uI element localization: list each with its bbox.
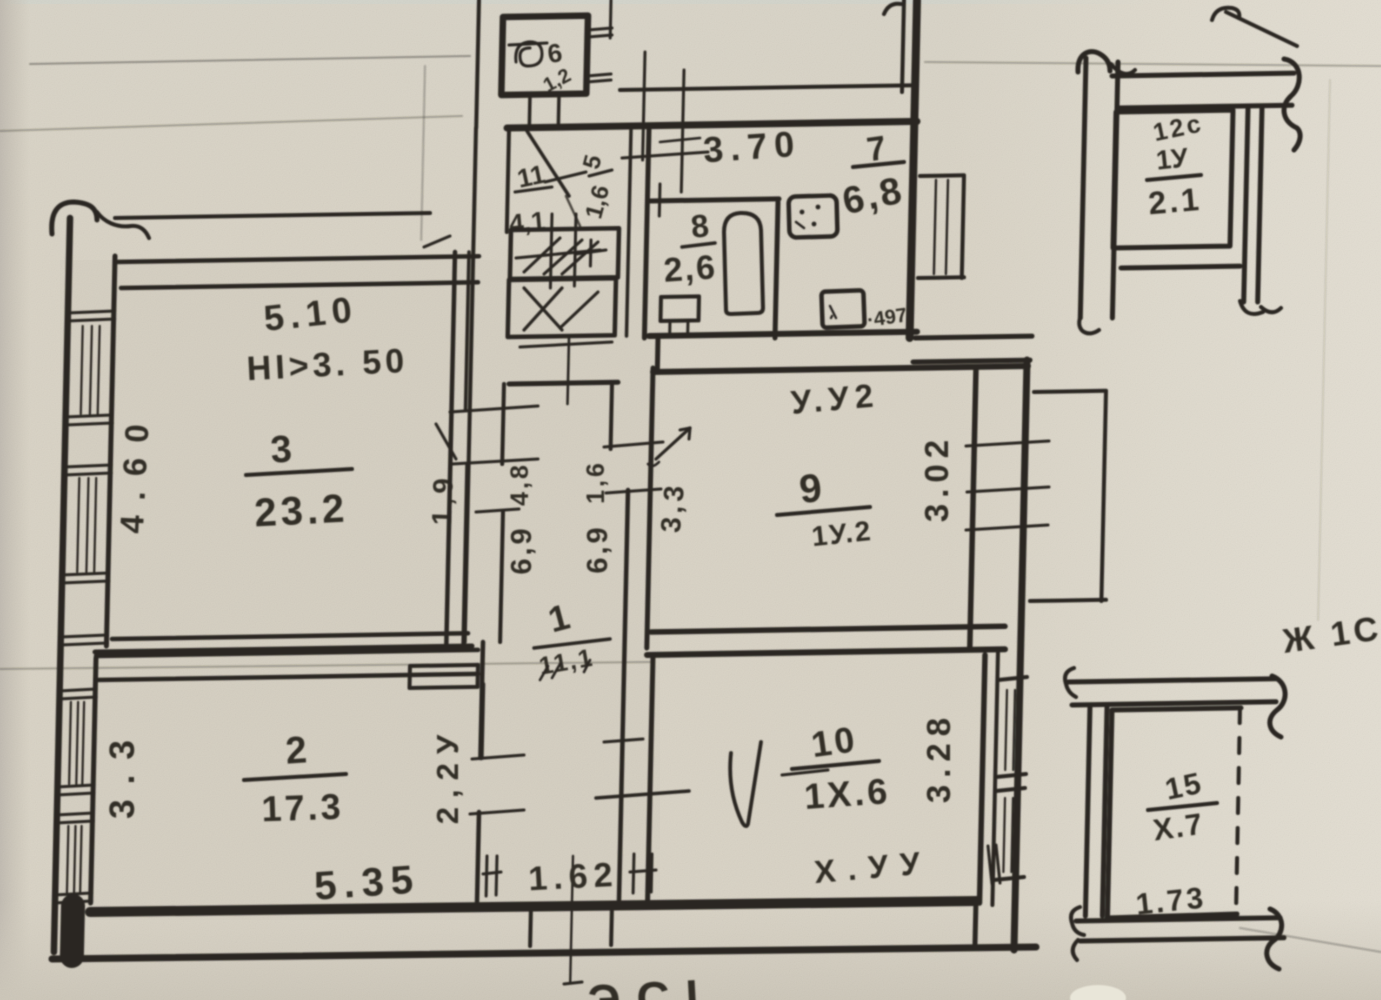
svg-text:3.02: 3.02 (918, 434, 955, 522)
svg-text:23.2: 23.2 (253, 487, 349, 536)
svg-text:1,9: 1,9 (426, 474, 459, 526)
svg-text:17.3: 17.3 (261, 786, 344, 830)
svg-text:3,3: 3,3 (655, 480, 690, 533)
svg-text:Х.7: Х.7 (1151, 808, 1206, 848)
svg-text:1Х.6: 1Х.6 (803, 770, 892, 817)
svg-text:2: 2 (284, 729, 308, 772)
svg-text:У.У2: У.У2 (789, 376, 880, 421)
svg-text:6,9: 6,9 (582, 524, 614, 573)
svg-text:10: 10 (809, 718, 860, 765)
svg-text:3.70: 3.70 (702, 123, 803, 171)
svg-text:2,6: 2,6 (662, 248, 718, 290)
svg-text:9: 9 (797, 466, 824, 512)
svg-text:3: 3 (269, 428, 293, 471)
svg-text:3.3: 3.3 (103, 725, 142, 819)
svg-text:5.35: 5.35 (313, 857, 422, 908)
svg-text:1У: 1У (1155, 142, 1191, 175)
svg-text:1,6: 1,6 (582, 460, 610, 504)
svg-text:4,8: 4,8 (506, 462, 534, 506)
svg-text:8: 8 (689, 207, 710, 245)
svg-text:1У.2: 1У.2 (810, 515, 874, 552)
svg-text:6,9: 6,9 (506, 525, 538, 574)
svg-text:2,2У: 2,2У (430, 726, 465, 824)
svg-text:2.1: 2.1 (1147, 181, 1203, 222)
svg-text:4.60: 4.60 (113, 408, 156, 534)
svg-text:3.28: 3.28 (920, 711, 957, 803)
svg-text:ЭСІ: ЭСІ (587, 969, 716, 1000)
svg-text:4,1: 4,1 (508, 206, 547, 239)
svg-text:1.62: 1.62 (527, 856, 619, 899)
